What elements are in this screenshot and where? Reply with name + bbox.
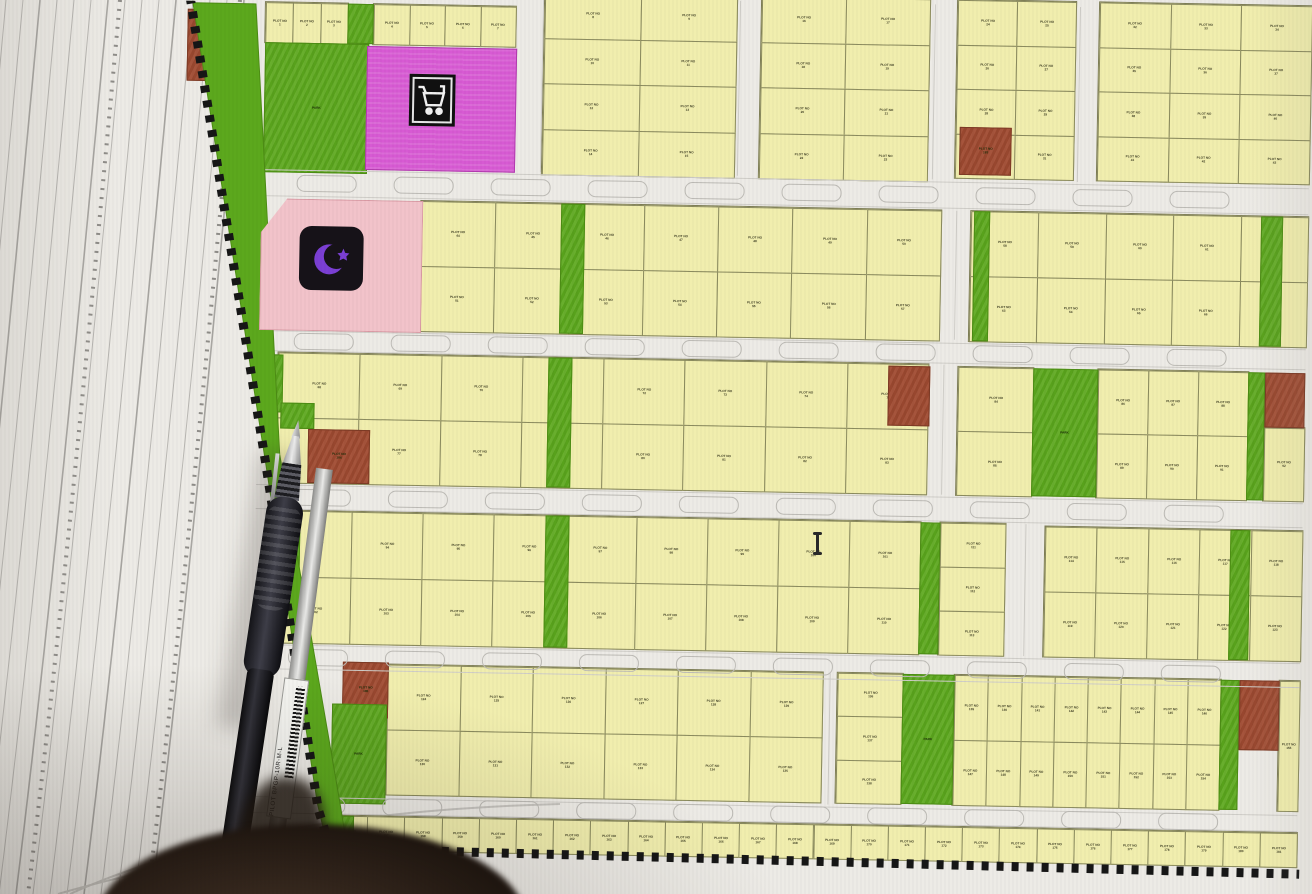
highway-hatched-edge xyxy=(28,0,120,894)
subdivision-plan: PLOT NO1PLOT NO2PLOT NO3PLOT NO4PLOT NO5… xyxy=(134,0,1312,894)
photo-of-screen-with-plot-map: PLOT NO1PLOT NO2PLOT NO3PLOT NO4PLOT NO5… xyxy=(0,0,1312,894)
boundary-and-road-lines xyxy=(134,0,1312,894)
highway-lane-line xyxy=(0,0,23,894)
highway-lane-line xyxy=(0,0,91,894)
highway-lane-line xyxy=(0,0,6,894)
crescent-star-icon xyxy=(299,226,364,291)
perimeter-green-belt xyxy=(178,3,362,847)
text-ibeam-cursor xyxy=(816,534,819,553)
highway-lane-line xyxy=(0,0,74,894)
commercial-plot xyxy=(365,46,517,173)
site-boundary-dashed xyxy=(174,0,1312,874)
mosque-plot xyxy=(259,198,423,333)
shopping-cart-icon xyxy=(409,74,456,127)
highway-lane-line xyxy=(0,0,40,894)
